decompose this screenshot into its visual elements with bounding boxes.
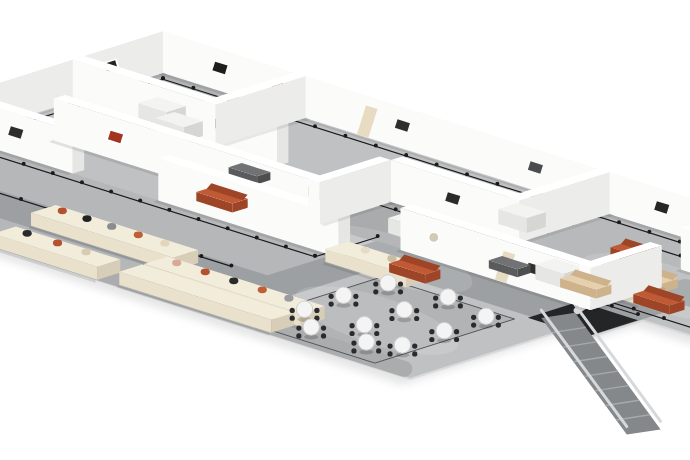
cafe-chair xyxy=(351,348,356,353)
track-stud xyxy=(191,86,195,90)
cafe-table xyxy=(296,301,312,317)
artifact xyxy=(229,277,238,284)
cafe-chair xyxy=(329,294,334,299)
isometric-scene-canvas xyxy=(0,0,690,460)
cafe-chair xyxy=(353,294,358,299)
track-stud xyxy=(80,180,84,184)
track-stud xyxy=(161,76,165,80)
track-stud xyxy=(19,197,23,201)
cafe-table xyxy=(358,334,374,350)
track-stud xyxy=(376,234,380,238)
cafe-chair xyxy=(471,323,476,328)
track-stud xyxy=(647,230,651,234)
cafe-chair xyxy=(349,331,354,336)
track-stud xyxy=(313,254,317,258)
cafe-chair xyxy=(353,302,358,307)
cafe-chair xyxy=(296,326,301,331)
cafe-chair xyxy=(398,281,403,286)
cafe-chair xyxy=(433,296,438,301)
track-stud xyxy=(404,153,408,157)
cafe-table xyxy=(436,322,452,338)
cafe-table xyxy=(394,337,410,353)
cafe-chair xyxy=(429,329,434,334)
track-stud xyxy=(343,134,347,138)
cafe-chair xyxy=(454,337,459,342)
wall-art-round xyxy=(429,233,438,242)
wall-cap xyxy=(308,179,319,225)
cafe-chair xyxy=(412,344,417,349)
track-stud xyxy=(394,207,398,211)
track-stud xyxy=(636,312,640,316)
cafe-chair xyxy=(414,308,419,313)
cafe-chair xyxy=(433,303,438,308)
cafe-chair xyxy=(389,308,394,313)
cafe-table xyxy=(380,275,396,291)
track-stud xyxy=(109,189,113,193)
track-stud xyxy=(51,171,55,175)
cafe-chair xyxy=(496,323,501,328)
track-stud xyxy=(167,208,171,212)
cafe-chair xyxy=(387,351,392,356)
artifact xyxy=(387,255,396,262)
cafe-chair xyxy=(376,348,381,353)
track-stud xyxy=(495,182,499,186)
artifact xyxy=(361,247,370,254)
track-stud xyxy=(138,199,142,203)
track-stud xyxy=(374,143,378,147)
artifact xyxy=(81,249,90,256)
cafe-chair xyxy=(398,289,403,294)
cafe-chair xyxy=(321,333,326,338)
track-stud xyxy=(465,172,469,176)
cafe-chair xyxy=(296,333,301,338)
cafe-chair xyxy=(458,303,463,308)
track-stud xyxy=(229,263,233,267)
artifact xyxy=(201,268,210,275)
cafe-chair xyxy=(349,323,354,328)
cafe-table xyxy=(335,287,351,303)
cafe-chair xyxy=(387,344,392,349)
cafe-chair xyxy=(290,316,295,321)
cafe-table xyxy=(478,308,494,324)
cafe-chair xyxy=(314,308,319,313)
track-stud xyxy=(313,124,317,128)
cafe-chair xyxy=(374,331,379,336)
artifact xyxy=(258,286,267,293)
cafe-table xyxy=(356,316,372,332)
cafe-chair xyxy=(329,302,334,307)
artifact xyxy=(23,230,32,237)
artifact xyxy=(58,207,67,214)
cafe-chair xyxy=(414,316,419,321)
track-stud xyxy=(435,163,439,167)
track-stud xyxy=(226,226,230,230)
artifact xyxy=(53,240,62,247)
cafe-chair xyxy=(374,323,379,328)
cafe-chair xyxy=(412,351,417,356)
track-stud xyxy=(199,254,203,258)
cafe-chair xyxy=(321,326,326,331)
cafe-chair xyxy=(376,341,381,346)
cafe-chair xyxy=(458,296,463,301)
cafe-chair xyxy=(373,289,378,294)
artifact xyxy=(284,295,293,302)
cafe-chair xyxy=(496,315,501,320)
cafe-chair xyxy=(454,329,459,334)
artifact xyxy=(172,259,181,266)
cafe-chair xyxy=(290,308,295,313)
museum-floorplan-render xyxy=(0,0,690,460)
track-stud xyxy=(255,235,259,239)
cafe-chair xyxy=(389,316,394,321)
track-stud xyxy=(662,316,666,320)
cafe-chair xyxy=(471,315,476,320)
track-stud xyxy=(617,220,621,224)
cafe-table xyxy=(396,301,412,317)
artifact xyxy=(82,215,91,222)
track-stud xyxy=(196,217,200,221)
cafe-chair xyxy=(351,341,356,346)
cafe-chair xyxy=(373,281,378,286)
cafe-table xyxy=(303,319,319,335)
track-stud xyxy=(22,162,26,166)
cafe-chair xyxy=(429,337,434,342)
artifact xyxy=(107,223,116,230)
artifact xyxy=(160,240,169,247)
cafe-table xyxy=(440,289,456,305)
track-stud xyxy=(284,245,288,249)
artifact xyxy=(134,231,143,238)
